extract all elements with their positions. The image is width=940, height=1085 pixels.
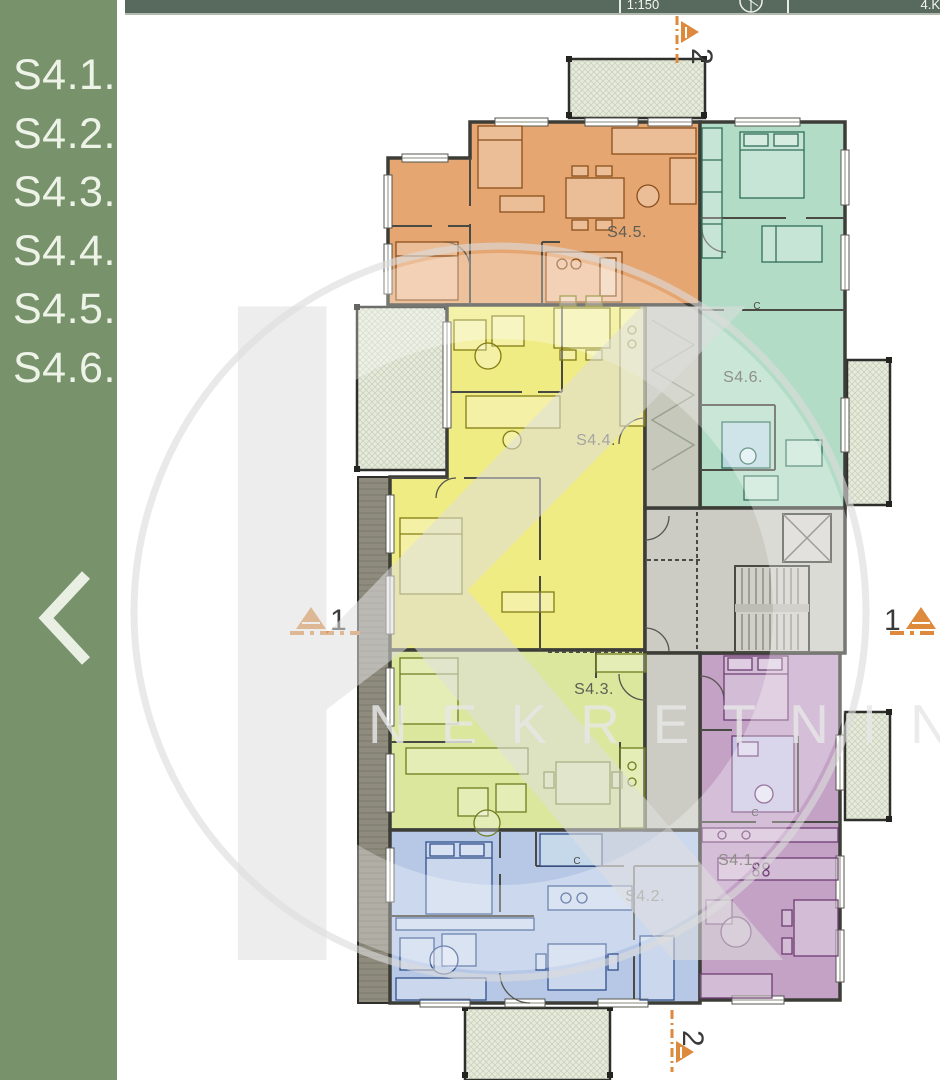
section-number: 2 [685,48,718,65]
floorplan-drawing: S4.5. S4.6. S4.4. S4.3. S4.2. S4.1. C C … [0,0,940,1080]
floor-label: 4.K [920,0,940,12]
boiler-label-2: C [751,808,758,819]
balcony-bottom [465,1008,610,1080]
label-s45: S4.5. [607,224,647,241]
section-marker-right: 1 [884,604,940,637]
sidebar-item-s44[interactable]: S4.4. [0,222,117,281]
sidebar-item-s43[interactable]: S4.3. [0,163,117,222]
stair-landing [735,604,809,612]
back-button[interactable] [38,570,92,666]
section-marker-top: 2 [677,16,718,65]
sidebar-item-s41[interactable]: S4.1. [0,46,117,105]
label-s44: S4.4. [576,432,616,449]
core-corridor [645,653,700,830]
balcony-right-teal [847,360,890,505]
sidebar-item-s42[interactable]: S4.2. [0,105,117,164]
label-s43: S4.3. [574,681,614,698]
core-strip [645,305,700,508]
boiler-label-1: C [753,301,760,312]
section-number: 2 [676,1030,709,1047]
apartment-link-list: S4.1. S4.2. S4.3. S4.4. S4.5. S4.6. [0,0,117,397]
label-s42: S4.2. [625,888,665,905]
section-marker-bottom: 2 [672,1010,709,1072]
label-s41: S4.1. [718,852,758,869]
sidebar-item-s45[interactable]: S4.5. [0,280,117,339]
section-marker-left: 1 [290,604,360,637]
titlebar-divider [787,0,789,13]
section-triangle-icon [906,607,936,629]
chevron-left-icon [38,570,92,666]
sidebar-item-s46[interactable]: S4.6. [0,339,117,398]
drawing-scale-label: 1:150 [613,0,673,12]
label-s46: S4.6. [723,369,763,386]
section-triangle-icon [681,21,699,43]
section-triangle-icon [296,607,326,629]
loggia-deck [358,477,392,1003]
section-number: 1 [330,604,347,637]
balcony-top [569,59,705,118]
boiler-label-3: C [573,856,580,867]
north-compass-icon [736,0,766,15]
drawing-titlebar: 1:150 4.K [125,0,940,15]
balcony-right-purple [845,712,890,820]
balcony-left [357,307,447,470]
apartment-sidebar: S4.1. S4.2. S4.3. S4.4. S4.5. S4.6. [0,0,117,1080]
titlebar-divider [619,0,621,13]
